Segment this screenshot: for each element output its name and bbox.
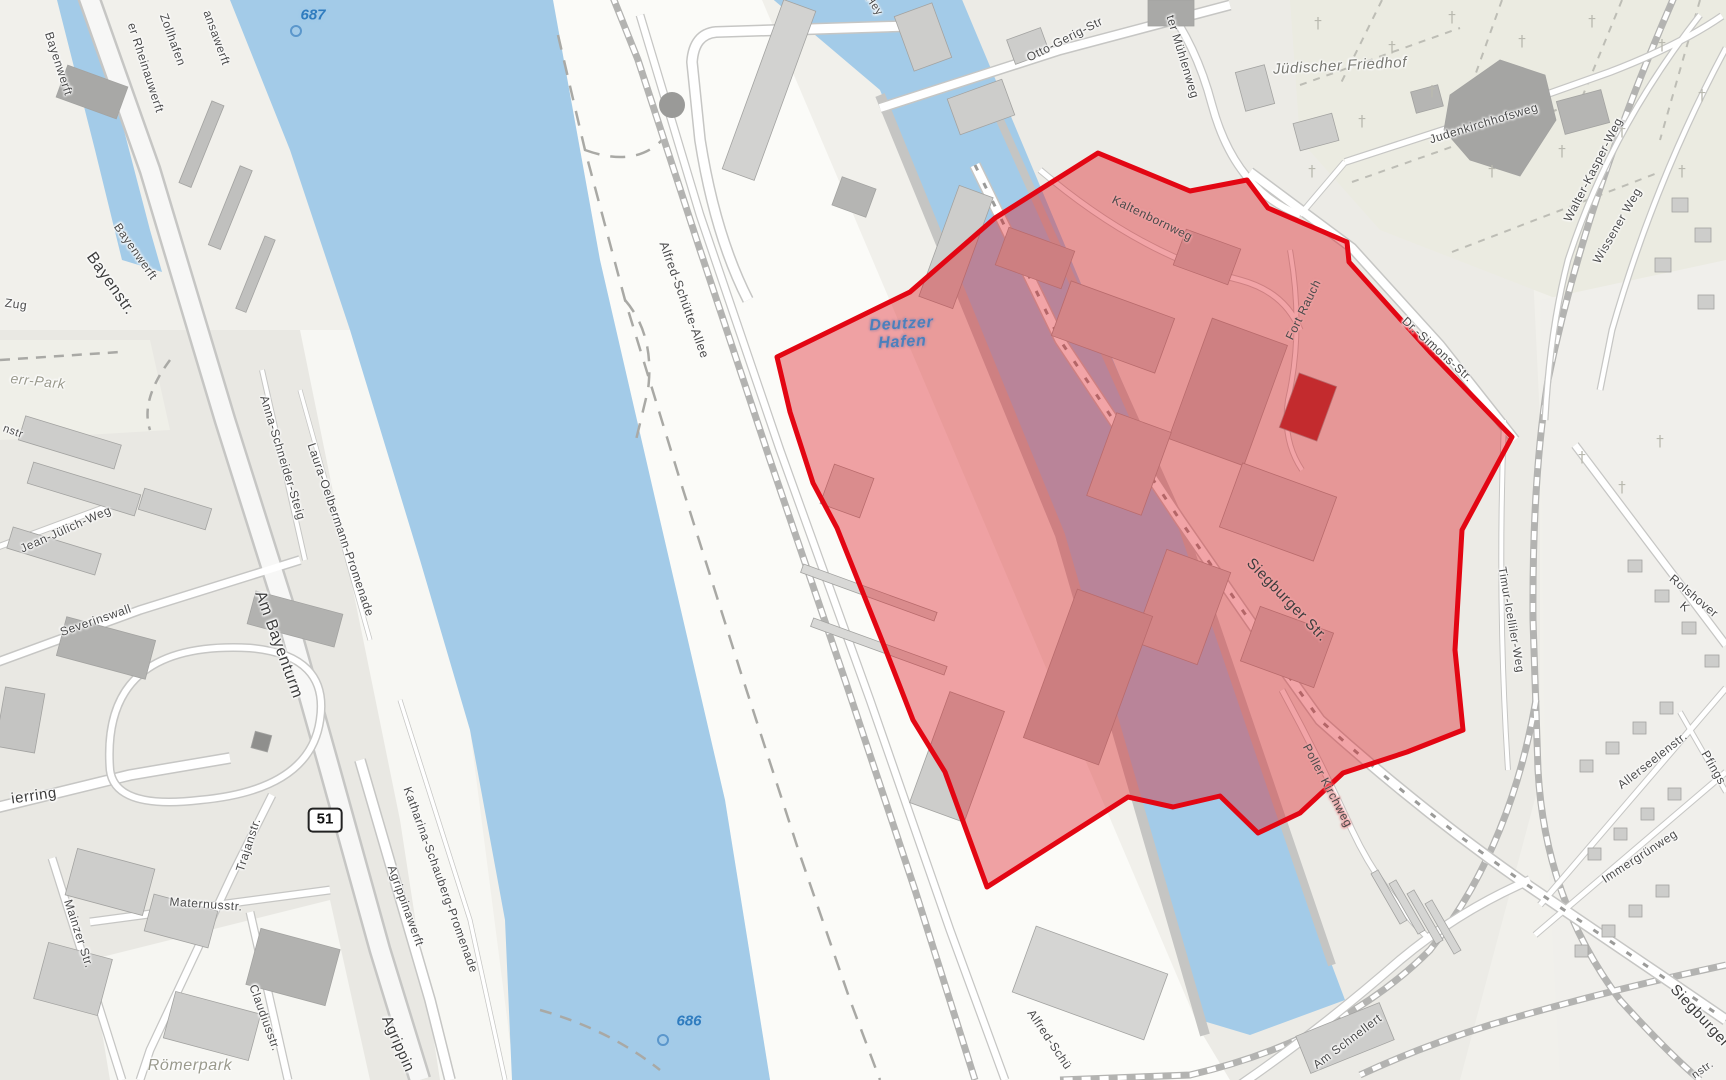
svg-text:†: †	[1314, 14, 1322, 32]
map-canvas[interactable]: ††† ††† ††† ††† †† ††† Bayenwerfter Rhei…	[0, 0, 1726, 1080]
swing-bridge-pivot	[659, 92, 685, 118]
svg-text:†: †	[1578, 448, 1586, 466]
svg-text:†: †	[1518, 32, 1526, 50]
svg-text:†: †	[1618, 122, 1626, 140]
svg-text:†: †	[1678, 162, 1686, 180]
svg-text:†: †	[1448, 8, 1456, 26]
route-51-badge: 51	[308, 808, 343, 833]
svg-text:†: †	[1428, 82, 1436, 100]
svg-text:†: †	[1618, 478, 1626, 496]
base-map: ††† ††† ††† ††† †† †††	[0, 0, 1726, 1080]
svg-text:†: †	[1308, 162, 1316, 180]
svg-text:†: †	[1358, 112, 1366, 130]
svg-text:†: †	[1698, 86, 1706, 104]
svg-text:†: †	[1656, 432, 1664, 450]
svg-text:†: †	[1588, 12, 1596, 30]
svg-text:†: †	[1558, 142, 1566, 160]
svg-text:†: †	[1488, 162, 1496, 180]
svg-text:†: †	[1658, 36, 1666, 54]
svg-text:†: †	[1388, 38, 1396, 56]
